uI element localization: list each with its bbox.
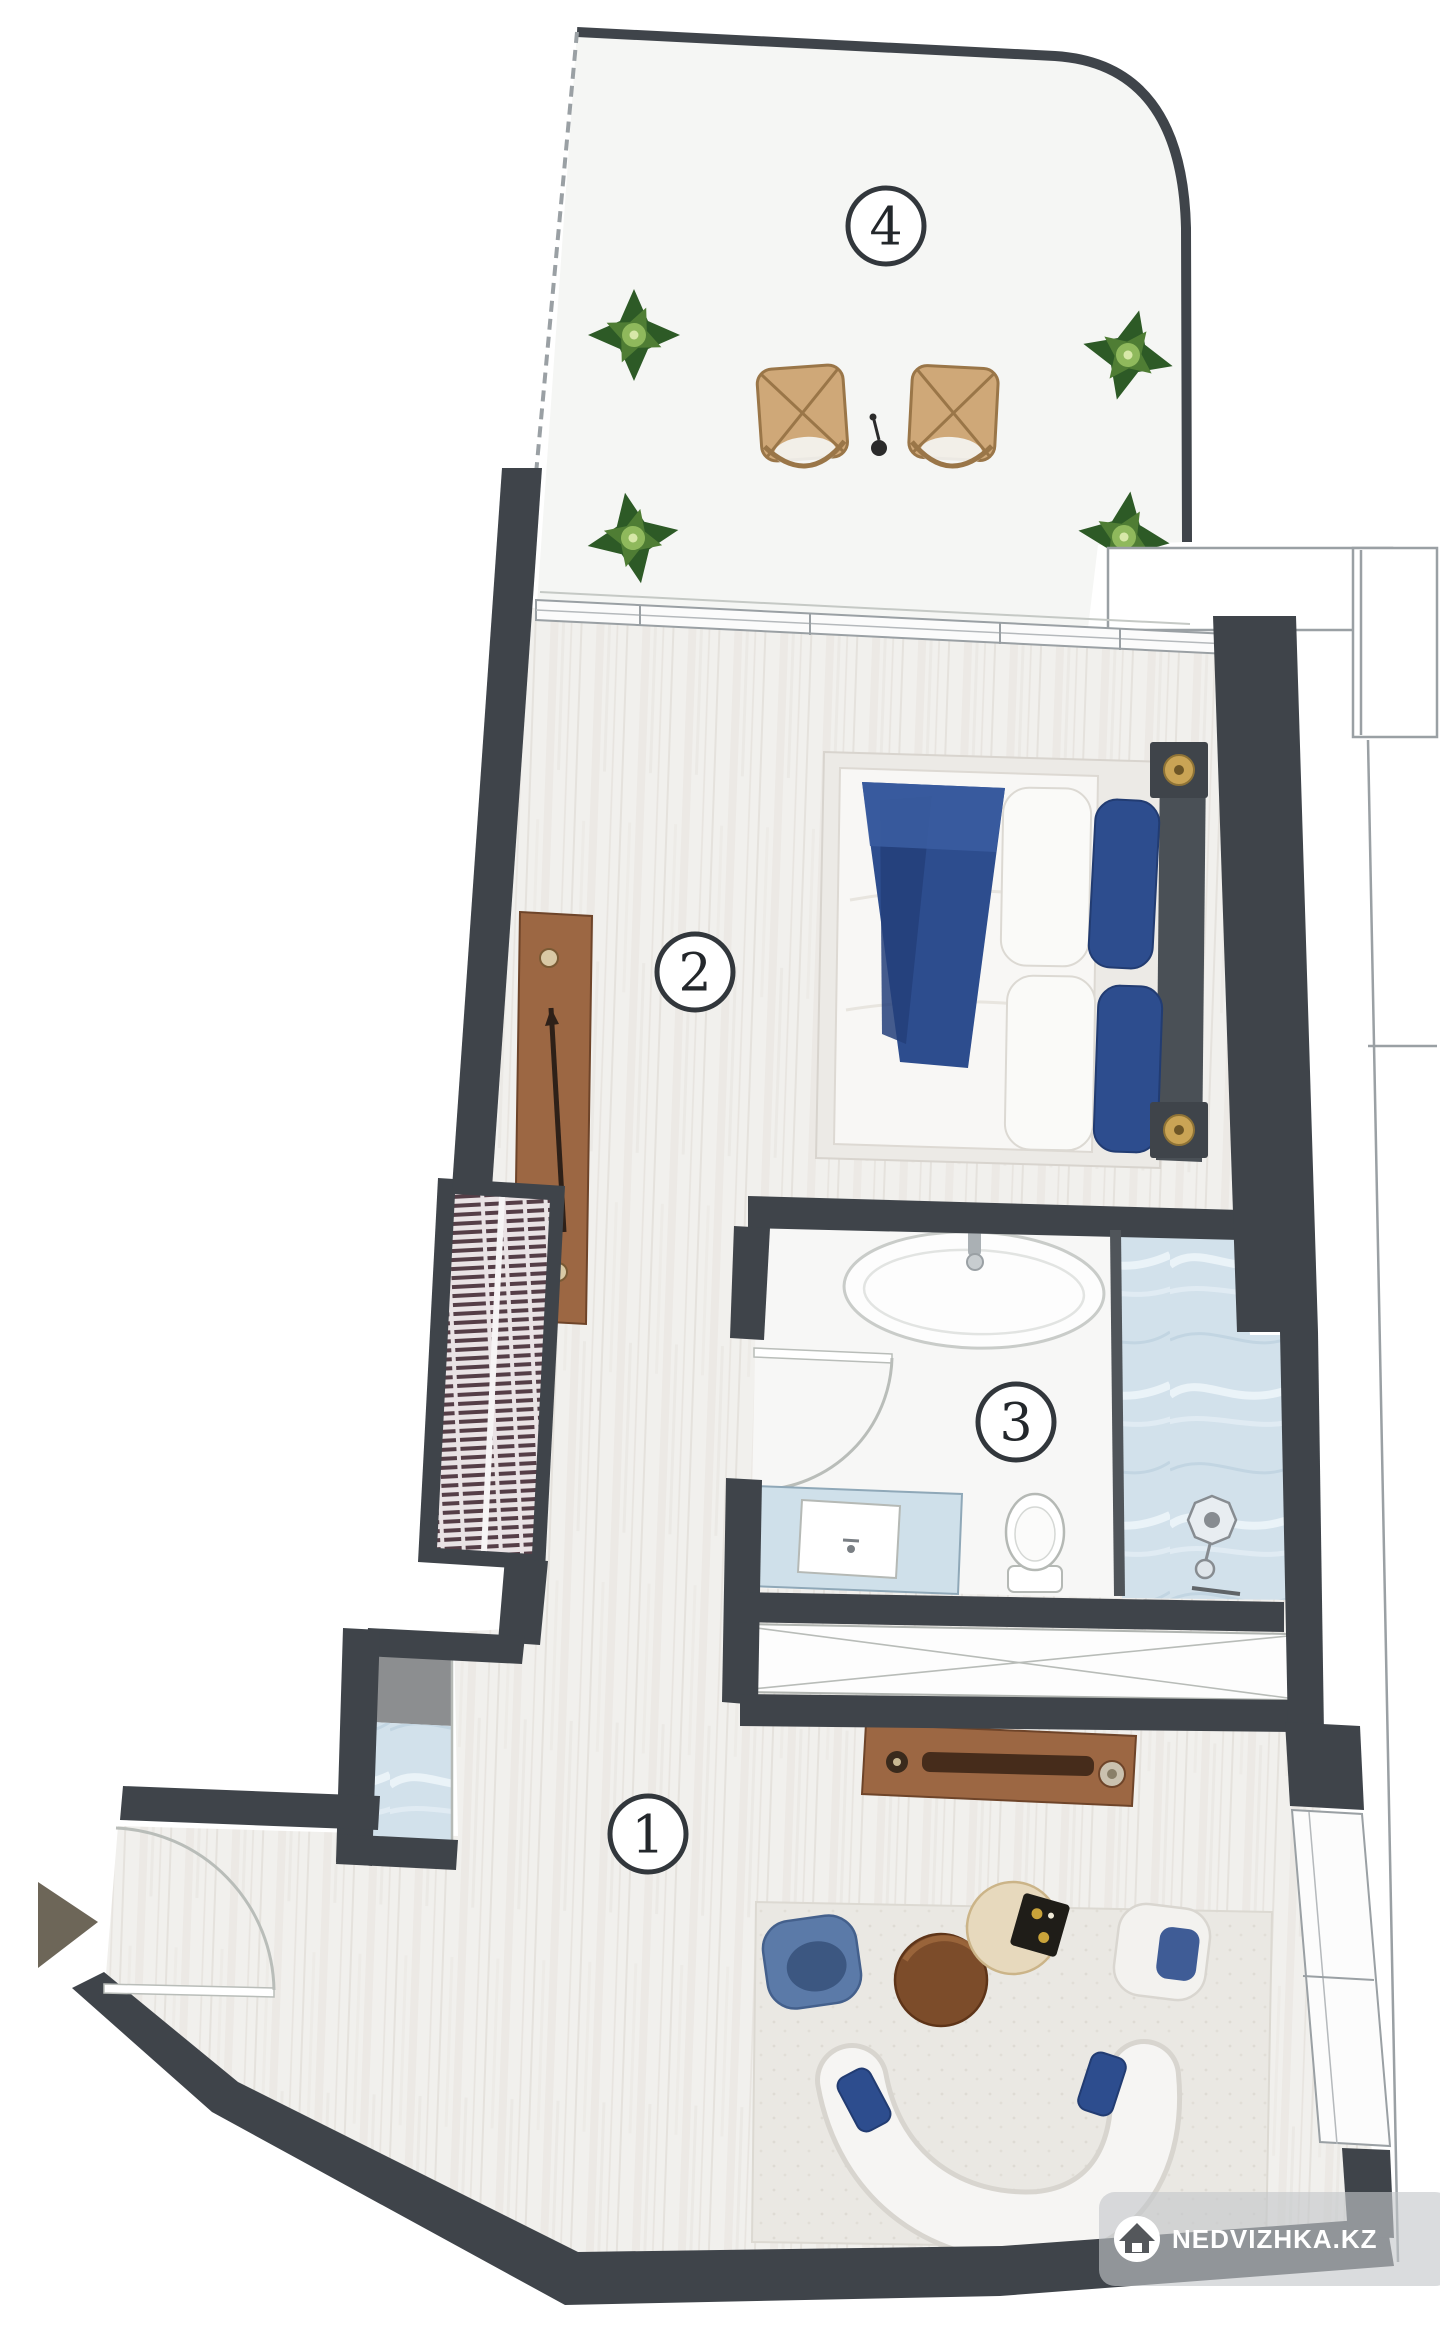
armchair-white — [1111, 1901, 1214, 2004]
pillow-blue — [1088, 798, 1161, 969]
room-number: 1 — [631, 1806, 664, 1866]
console-table — [862, 1724, 1136, 1806]
room-number: 3 — [999, 1394, 1032, 1454]
floor-plan: 1 2 3 4 NEDVIZHKA.KZ — [0, 0, 1440, 2338]
bed — [816, 742, 1208, 1168]
watermark: NEDVIZHKA.KZ — [1099, 2192, 1440, 2286]
floor-plan-page: 1 2 3 4 NEDVIZHKA.KZ — [0, 0, 1440, 2338]
entry-arrow-icon — [38, 1882, 98, 1968]
room-number: 2 — [678, 944, 711, 1004]
pillow-white — [1000, 787, 1091, 967]
pillow-white — [1004, 975, 1095, 1151]
sconce-icon — [1150, 742, 1208, 798]
toilet — [1006, 1494, 1064, 1592]
sconce-icon — [1150, 1102, 1208, 1158]
room-badge-bedroom: 2 — [657, 934, 733, 1010]
watermark-text: NEDVIZHKA.KZ — [1172, 2224, 1378, 2254]
terrace — [528, 32, 1187, 628]
entry-niche — [370, 1652, 452, 1840]
room-badge-terrace: 4 — [848, 188, 924, 264]
wardrobe — [418, 1178, 565, 1570]
room-badge-living: 1 — [610, 1796, 686, 1872]
room-number: 4 — [869, 198, 902, 258]
armchair-blue — [759, 1912, 864, 2012]
void-closet — [740, 1624, 1290, 1700]
terrace-chair — [756, 364, 849, 470]
vanity-sink — [750, 1486, 962, 1594]
terrace-chair — [908, 365, 999, 469]
headboard — [1156, 758, 1206, 1162]
room-badge-bathroom: 3 — [978, 1384, 1054, 1460]
